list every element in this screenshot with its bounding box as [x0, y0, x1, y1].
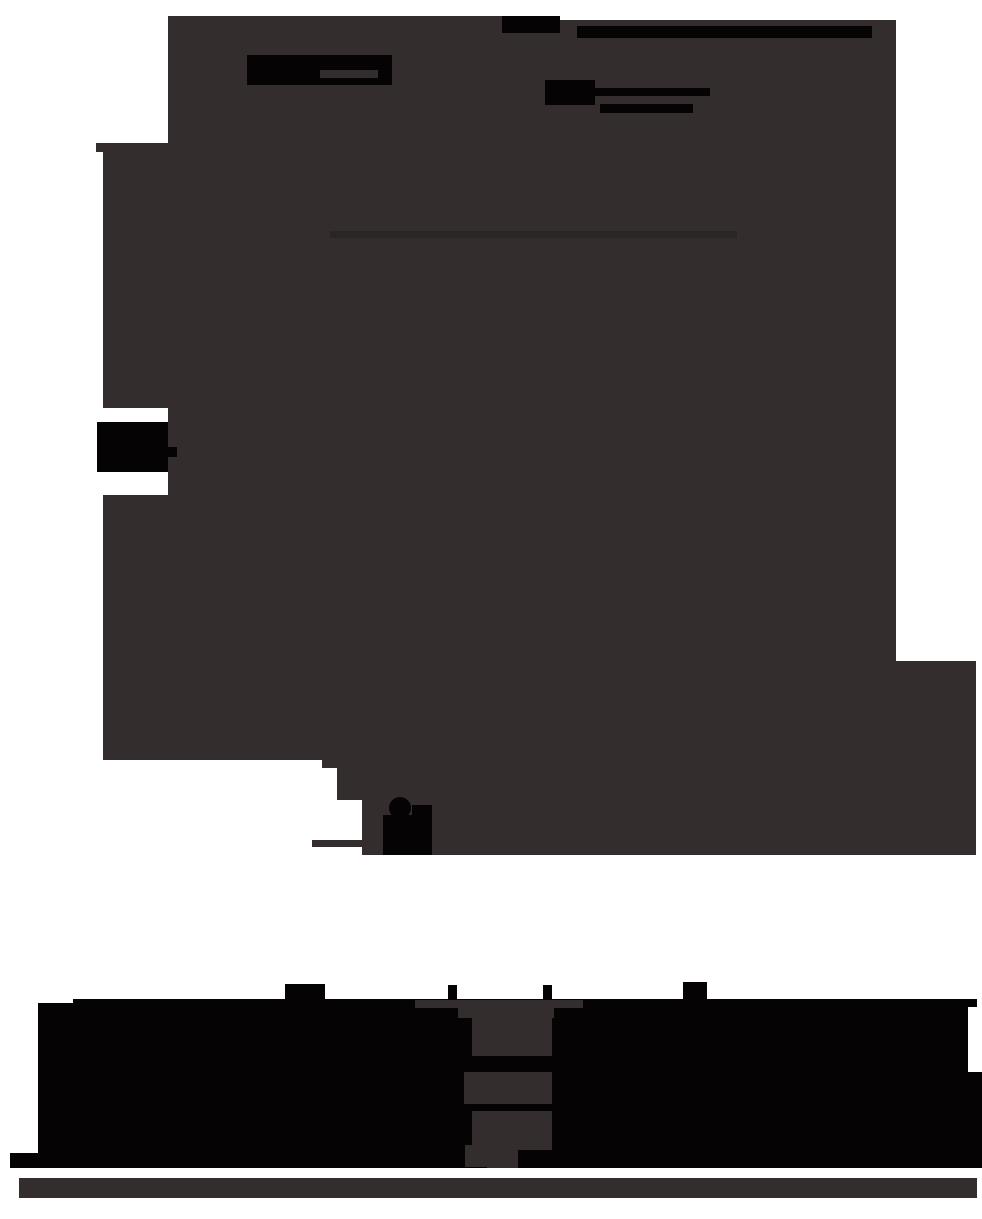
- top-redacted-bar: [577, 26, 872, 38]
- page-canvas: [0, 0, 982, 1219]
- left-edge-tab-nub: [168, 447, 177, 457]
- wordmark-funnel-tail-2: [487, 1150, 518, 1168]
- faint-divider-line: [330, 231, 737, 238]
- wordmark-funnel-tail-1: [465, 1145, 487, 1167]
- wordmark-funnel-flare: [415, 1000, 583, 1008]
- heading-block-slit: [320, 70, 378, 78]
- wordmark-nub-4: [543, 985, 552, 1000]
- subheading-redacted-square: [545, 80, 595, 105]
- wordmark-funnel-segment-2: [464, 1072, 552, 1104]
- staircase-step: [312, 840, 362, 847]
- wordmark-nub-2: [683, 982, 707, 1000]
- top-left-redacted-block: [502, 16, 560, 33]
- wordmark-funnel-segment-1: [472, 1018, 552, 1056]
- left-edge-tab: [97, 422, 168, 472]
- wordmark-funnel-neck: [458, 1008, 554, 1018]
- wordmark-nub-3: [448, 985, 457, 1000]
- subheading-redacted-line-1: [595, 88, 710, 96]
- subheading-redacted-line-2: [600, 104, 693, 113]
- wordmark-nub-1: [285, 984, 325, 1000]
- footer-bar: [19, 1178, 977, 1198]
- pointer-blob-body: [383, 815, 432, 855]
